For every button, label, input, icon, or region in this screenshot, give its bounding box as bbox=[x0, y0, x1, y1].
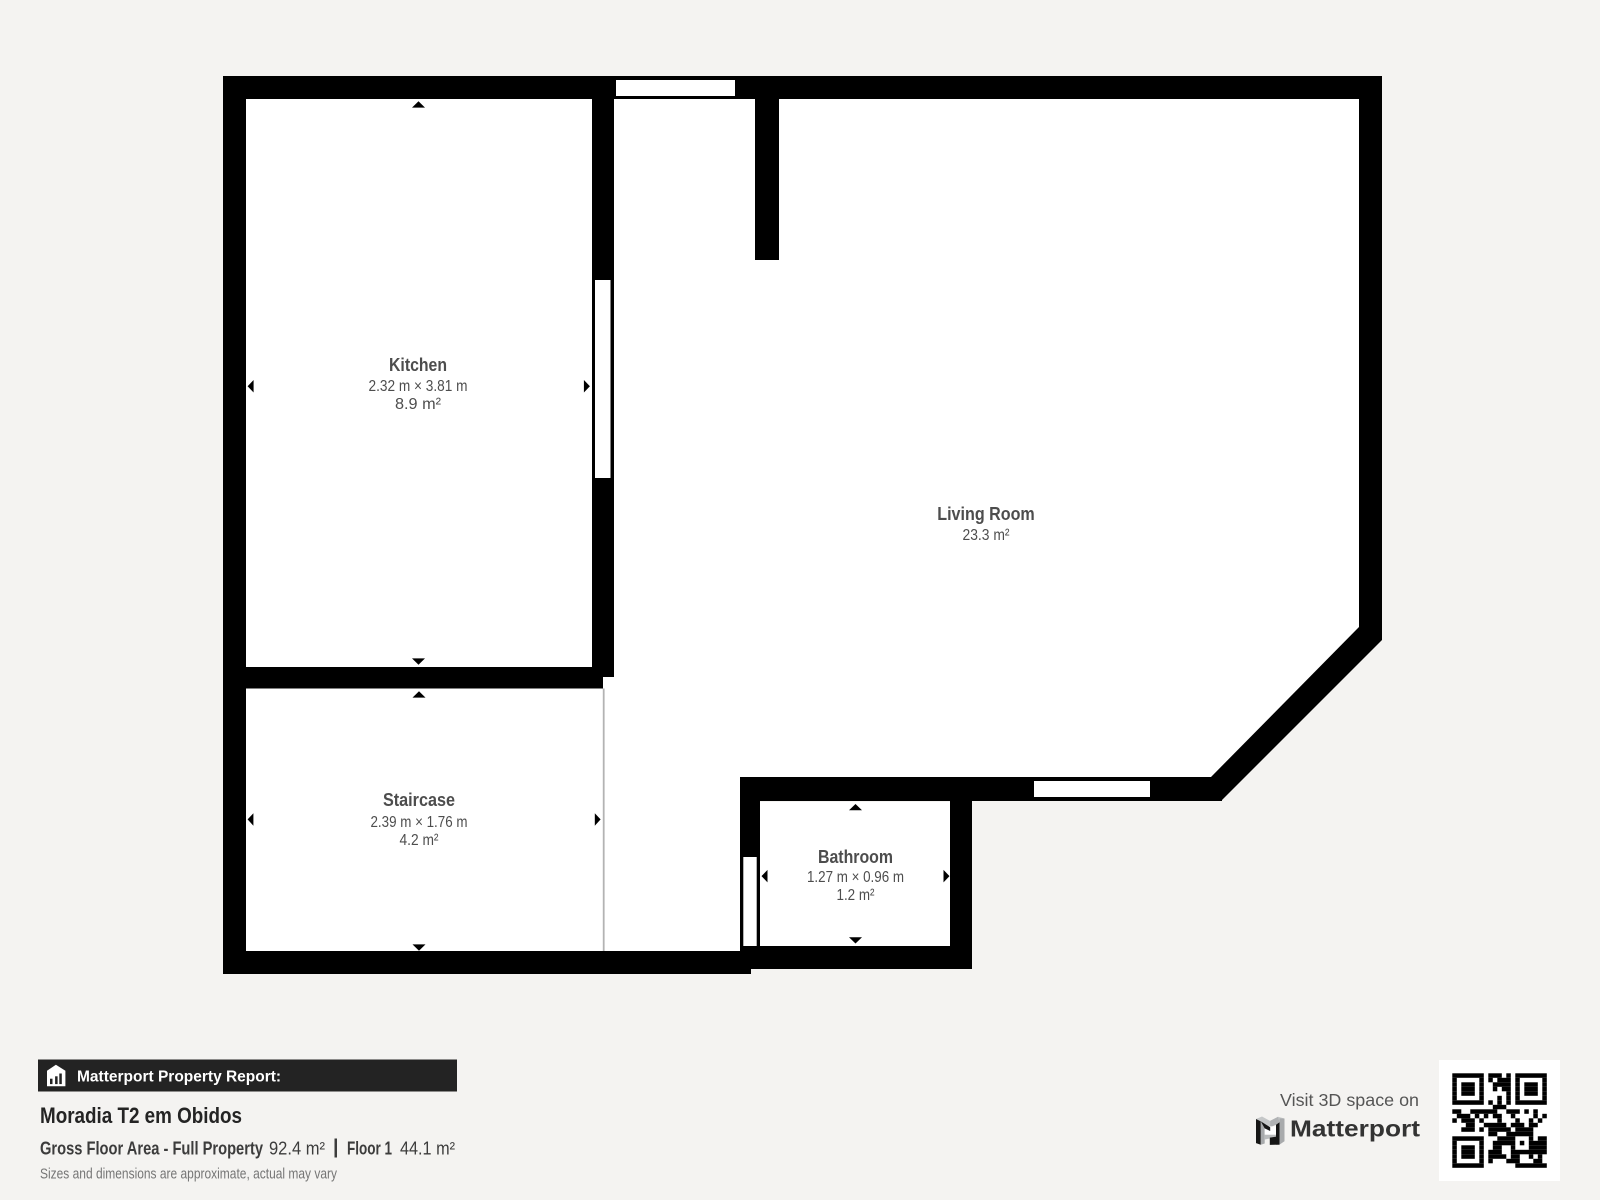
svg-text:Staircase: Staircase bbox=[383, 789, 455, 810]
svg-text:Kitchen: Kitchen bbox=[389, 354, 447, 375]
svg-text:44.1 m²: 44.1 m² bbox=[400, 1139, 455, 1159]
svg-text:Living Room: Living Room bbox=[937, 503, 1035, 524]
svg-text:Visit 3D space on: Visit 3D space on bbox=[1280, 1090, 1419, 1110]
svg-text:4.2 m²: 4.2 m² bbox=[400, 832, 440, 849]
svg-text:Bathroom: Bathroom bbox=[818, 846, 893, 867]
svg-text:Floor 1: Floor 1 bbox=[347, 1139, 392, 1159]
svg-text:Matterport: Matterport bbox=[1290, 1116, 1420, 1142]
svg-text:23.3 m²: 23.3 m² bbox=[963, 527, 1011, 544]
svg-text:Sizes and dimensions are appro: Sizes and dimensions are approximate, ac… bbox=[40, 1166, 337, 1183]
svg-text:Gross Floor Area - Full Proper: Gross Floor Area - Full Property bbox=[40, 1139, 263, 1159]
svg-text:2.39 m × 1.76 m: 2.39 m × 1.76 m bbox=[371, 814, 468, 831]
svg-text:8.9 m²: 8.9 m² bbox=[395, 396, 442, 413]
svg-text:Moradia T2 em Obidos: Moradia T2 em Obidos bbox=[40, 1103, 242, 1128]
svg-text:2.32 m × 3.81 m: 2.32 m × 3.81 m bbox=[369, 378, 468, 395]
svg-text:1.27 m × 0.96 m: 1.27 m × 0.96 m bbox=[807, 869, 904, 886]
svg-text:1.2 m²: 1.2 m² bbox=[837, 887, 876, 904]
svg-text:92.4 m²: 92.4 m² bbox=[269, 1139, 325, 1159]
svg-text:Matterport Property Report:: Matterport Property Report: bbox=[77, 1069, 281, 1086]
